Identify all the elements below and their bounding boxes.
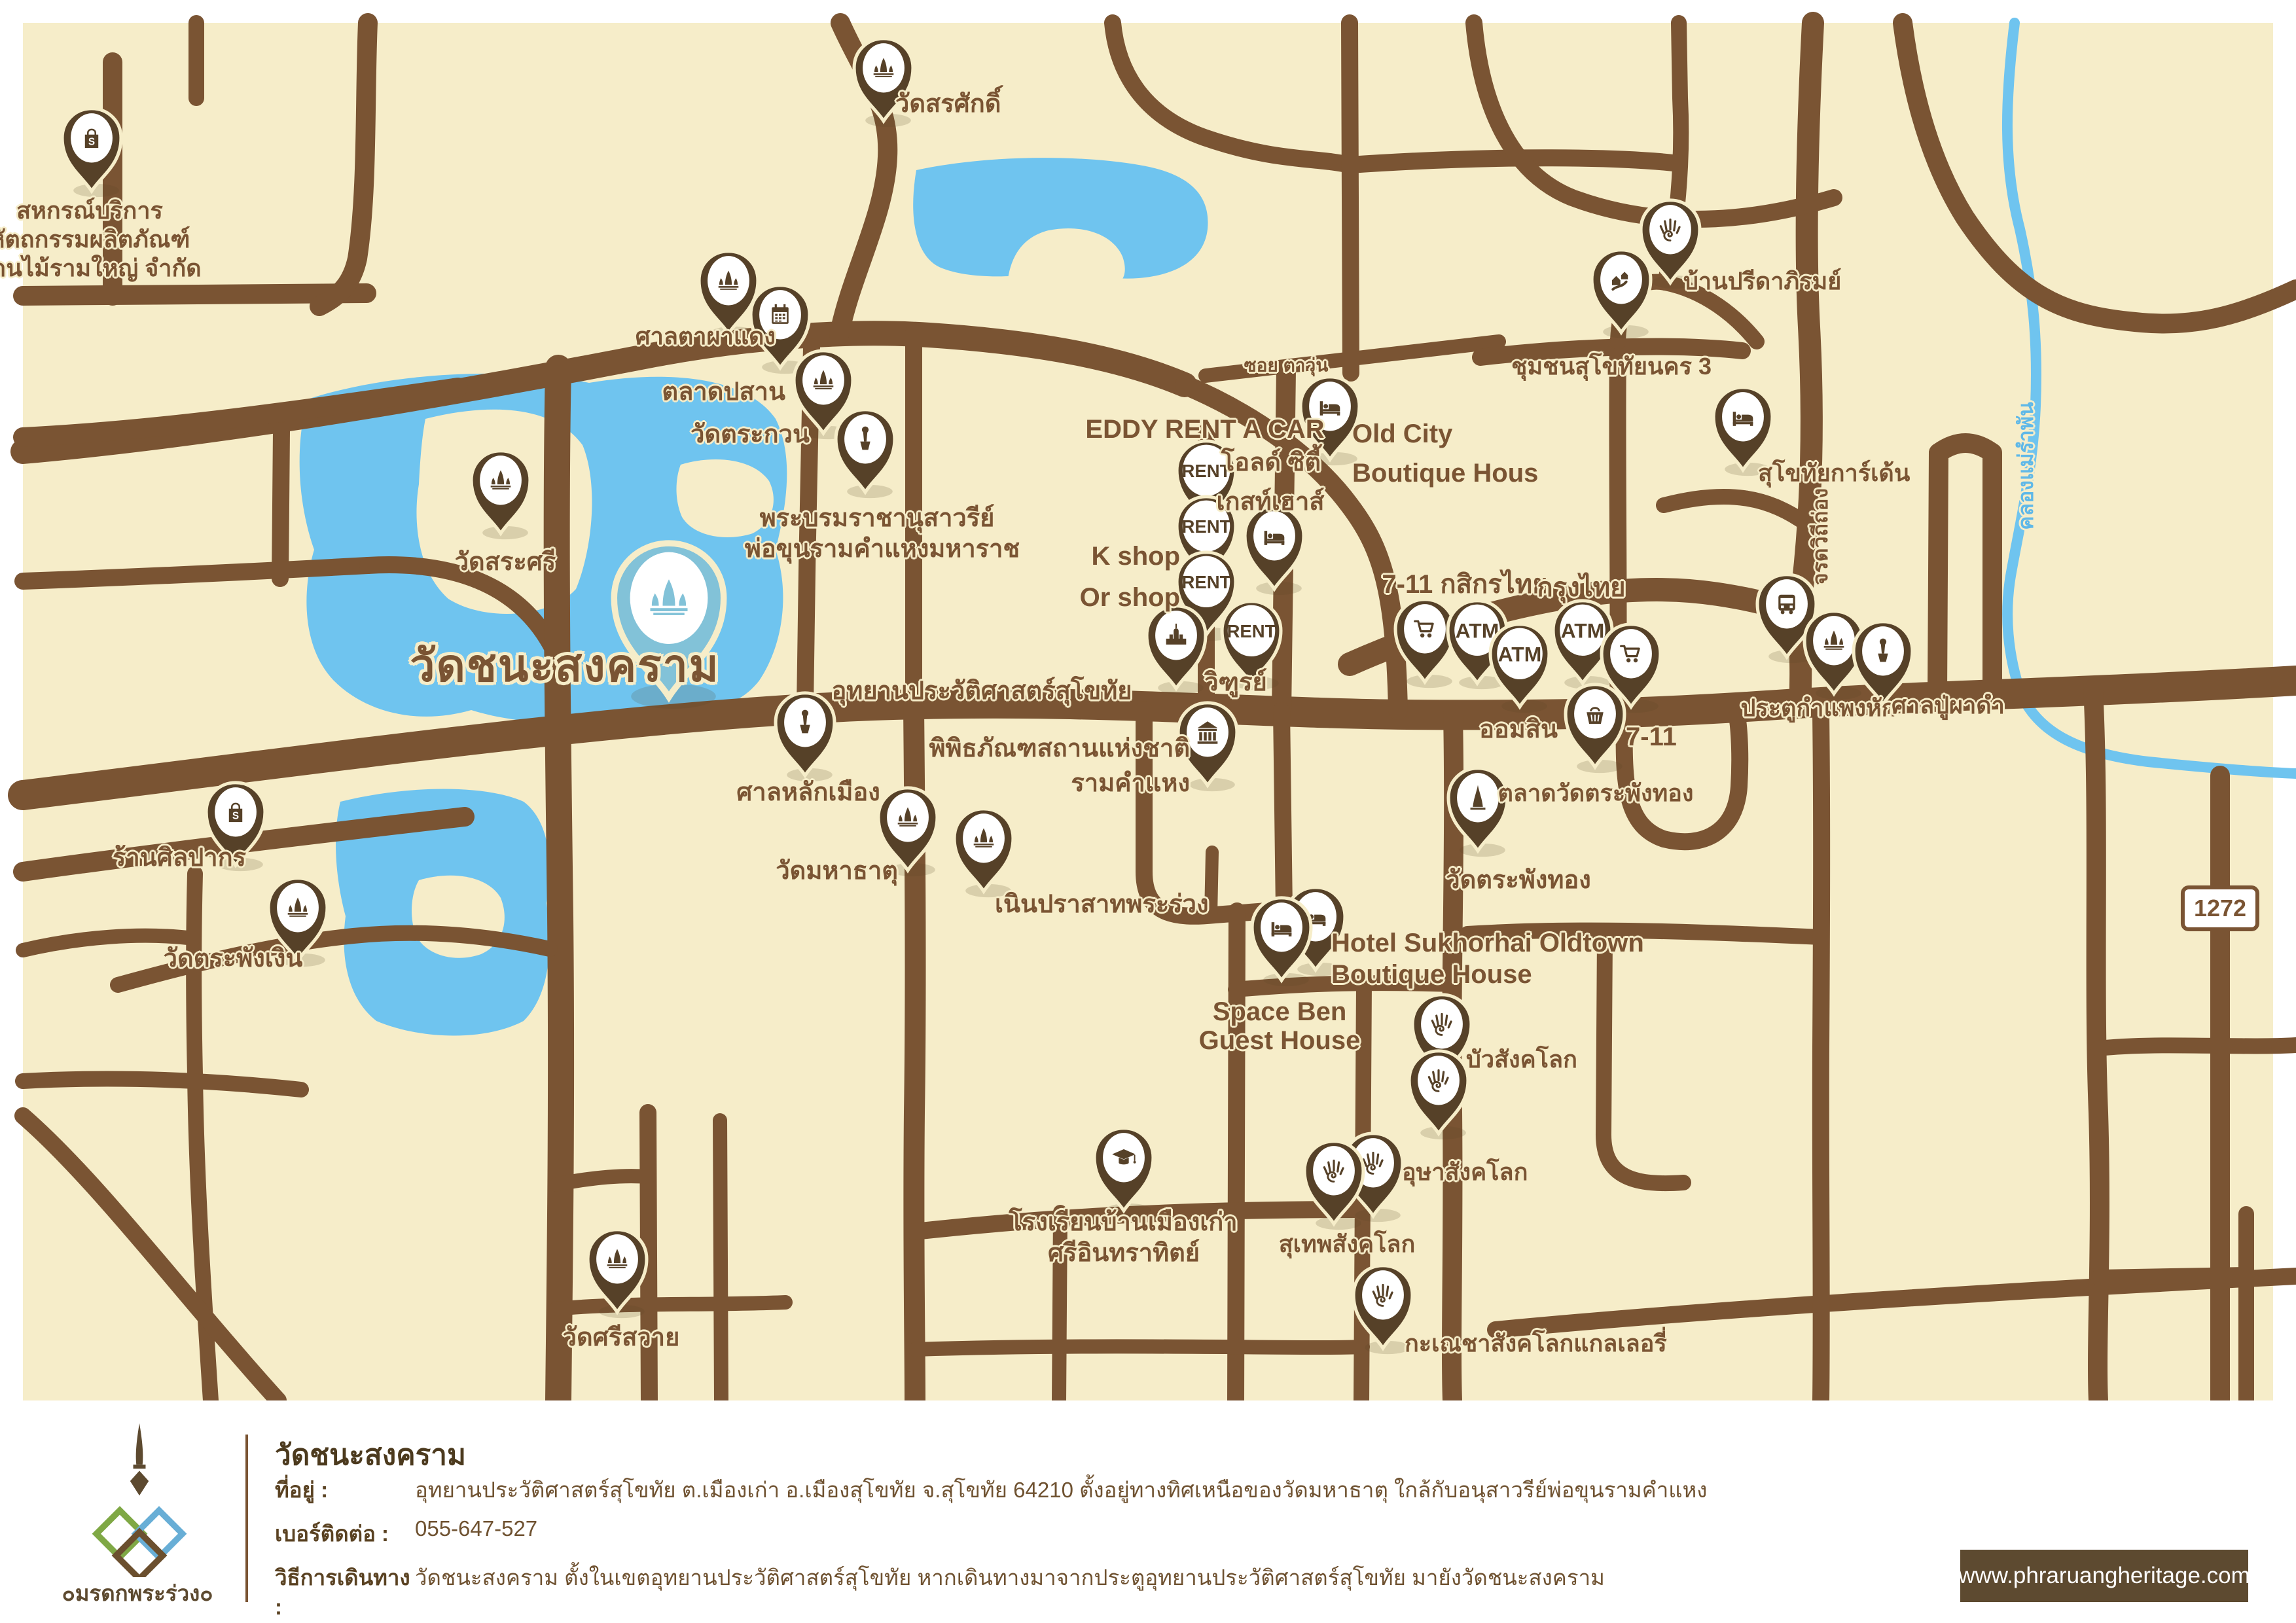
road-10: [23, 293, 367, 296]
label-17: รามคำแหง: [1071, 771, 1190, 797]
label-13: ศาลหลักเมือง: [736, 780, 880, 806]
label-32: ตลาดวัดตระพังทอง: [1498, 781, 1694, 806]
road-52: [2098, 1045, 2296, 1048]
label-7: พระบรมราชานุสาวรีย์: [760, 506, 995, 532]
label-10: วัดชนะสงคราม: [410, 643, 719, 689]
directions-label: วิธีการเดินทาง :: [275, 1560, 415, 1620]
label-2: บ้านไม้รามใหญ่ จำกัด: [0, 256, 202, 281]
label-43: กะเณชาสังคโลกแกลเลอรี่: [1405, 1331, 1667, 1356]
footer-row-directions: วิธีการเดินทาง : วัดชนะสงคราม ตั้งในเขตอ…: [275, 1560, 1911, 1620]
route-1272-badge: 1272: [2181, 885, 2259, 931]
label-4: ศาลตาผาแดง: [636, 324, 776, 349]
label-11: อุทยานประวัติศาสตร์สุโขทัย: [831, 679, 1132, 705]
label-0: สหกรณ์บริการ: [16, 198, 163, 223]
footer-title: วัดชนะสงคราม: [275, 1432, 466, 1478]
label-6: วัดตระกวน: [691, 422, 810, 448]
label-40: บัวสังคโลก: [1466, 1047, 1577, 1072]
svg-text:RENT: RENT: [1182, 516, 1231, 537]
label-31: 7-11: [1626, 723, 1677, 751]
road-30: [1211, 852, 1212, 915]
svg-text:RENT: RENT: [1182, 572, 1231, 592]
svg-text:S: S: [232, 811, 239, 822]
label-9: วัดสระศรี: [455, 550, 556, 576]
label-21: K shop: [1091, 543, 1180, 570]
road-62: [556, 1302, 785, 1309]
label-47: วัดตระพังเงิน: [164, 946, 303, 972]
label-42: สุเทพสังคโลก: [1279, 1232, 1416, 1257]
label-51: คลองแม่รำพัน: [2015, 402, 2037, 530]
label-35: วัดตระพังทอง: [1446, 868, 1591, 894]
road-37: [915, 1346, 1363, 1349]
svg-text:RENT: RENT: [1227, 621, 1276, 641]
phone-label: เบอร์ติดต่อ :: [275, 1516, 415, 1551]
label-30: ออมสิน: [1479, 717, 1558, 743]
label-8: พ่อขุนรามคำแหงมหาราช: [745, 537, 1020, 563]
road-44: [1350, 23, 1351, 373]
svg-text:ATM: ATM: [1561, 618, 1605, 642]
road-14: [280, 431, 281, 579]
label-27: สุโขทัยการ์เด้น: [1758, 461, 1910, 486]
footer-divider: [245, 1435, 248, 1602]
label-48: ร้านศิลปากร: [113, 846, 246, 872]
label-5: ตลาดปสาน: [662, 380, 785, 406]
road-48: [1937, 453, 1939, 694]
label-18: EDDY RENT A CAR: [1085, 416, 1324, 443]
road-17: [557, 368, 561, 1400]
footer-row-phone: เบอร์ติดต่อ : 055-647-527: [275, 1516, 1911, 1551]
label-14: วัดมหาธาตุ: [776, 859, 898, 885]
label-20: เกสท์เฮาส์: [1217, 490, 1325, 516]
label-44: โรงเรียนบ้านเมืองเก่า: [1009, 1210, 1237, 1236]
phraruang-heritage-logo: [58, 1420, 221, 1577]
address-label: ที่อยู่ :: [275, 1472, 415, 1507]
label-29: กรุงไทย: [1537, 574, 1625, 601]
label-46: วัดศรีสวาย: [563, 1325, 680, 1351]
road-61: [720, 1120, 721, 1400]
label-38: Space Ben: [1213, 998, 1347, 1026]
footer-details: ที่อยู่ : อุทยานประวัติศาสตร์สุโขทัย ต.เ…: [275, 1472, 1911, 1623]
label-22: Or shop: [1080, 584, 1180, 611]
label-45: ศรีอินทราทิตย์: [1048, 1241, 1200, 1267]
map-page: SRENTRENTRENTATMATMRENTATMS สหกรณ์บริการ…: [0, 0, 2296, 1623]
svg-text:S: S: [88, 137, 95, 148]
label-41: อุษาสังคโลก: [1402, 1160, 1528, 1185]
logo-caption: ๐มรดกพระร่วง๐: [36, 1576, 239, 1611]
road-60: [556, 1176, 648, 1185]
label-25: ชุมชนสุโขทัยนคร 3: [1511, 354, 1712, 379]
label-33: ประตูกำแพงหัก: [1741, 696, 1896, 721]
address-value: อุทยานประวัติศาสตร์สุโขทัย ต.เมืองเก่า อ…: [415, 1472, 1911, 1507]
label-28: 7-11 กสิกรไทย: [1382, 571, 1547, 598]
label-15: เนินปราสาทพระร่วง: [995, 892, 1209, 918]
website-url[interactable]: www.phraruangheritage.com: [1960, 1550, 2248, 1602]
label-37: Boutique House: [1331, 961, 1532, 988]
info-footer: ๐มรดกพระร่วง๐ วัดชนะสงคราม ที่อยู่ : อุท…: [0, 1400, 2296, 1623]
label-16: พิพิธภัณฑสถานแห่งชาติ: [929, 736, 1190, 762]
label-34: ศาลปู่ผาดำ: [1892, 693, 2005, 718]
stupa-spire-icon: [130, 1423, 149, 1496]
road-53: [2098, 1275, 2246, 1277]
label-24: Boutique Hous: [1352, 459, 1538, 487]
directions-value-line1: วัดชนะสงคราม ตั้งในเขตอุทยานประวัติศาสตร…: [415, 1560, 1911, 1620]
label-50: จรดวิถีถ่อง: [1810, 488, 1832, 585]
phone-value[interactable]: 055-647-527: [415, 1516, 1911, 1551]
footer-row-address: ที่อยู่ : อุทยานประวัติศาสตร์สุโขทัย ต.เ…: [275, 1472, 1911, 1507]
label-19: โอลด์ ซิตี้: [1221, 450, 1321, 476]
svg-text:ATM: ATM: [1498, 642, 1542, 666]
sukhothai-map-canvas[interactable]: SRENTRENTRENTATMATMRENTATMS: [0, 0, 2296, 1623]
label-1: หัตถกรรมผลิตภัณฑ์: [0, 227, 190, 252]
label-12: วิฑูรย์: [1204, 670, 1267, 696]
label-36: Hotel Sukhorhai Oldtown: [1331, 929, 1644, 957]
label-26: บ้านปรีดาภิรมย์: [1683, 269, 1841, 294]
label-23: Old City: [1352, 420, 1452, 448]
label-49: ซอย ตาวุ่น: [1244, 355, 1329, 374]
label-39: Guest House: [1199, 1027, 1361, 1054]
road-56: [1821, 713, 1821, 1400]
label-3: วัดสรศักดิ์: [895, 92, 1001, 118]
